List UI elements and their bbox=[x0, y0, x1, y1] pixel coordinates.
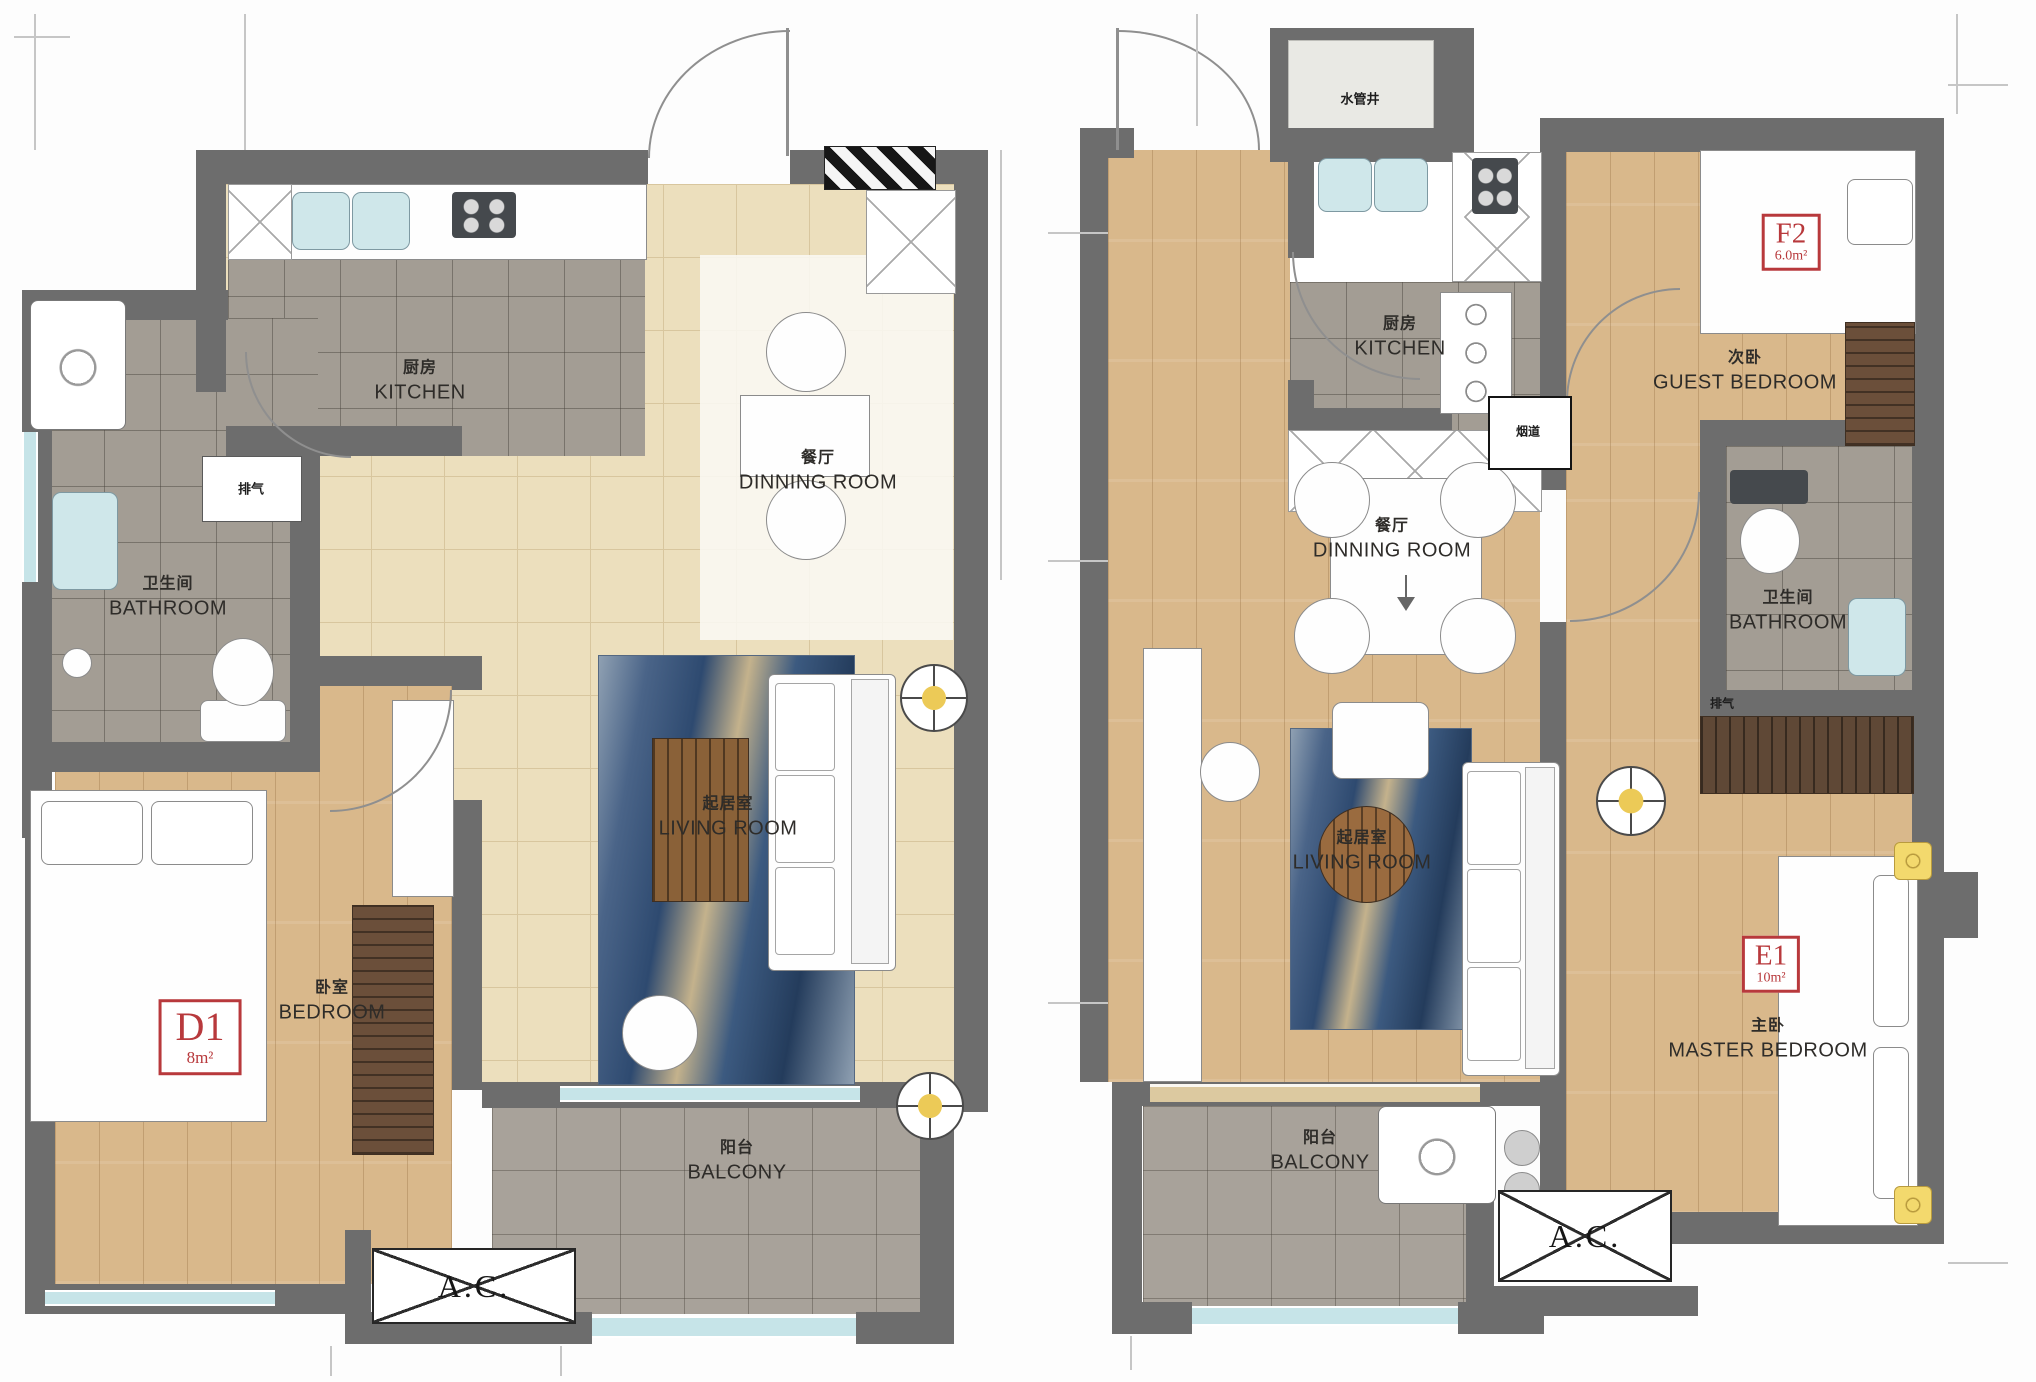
right-kitchen-sink-right bbox=[1374, 158, 1428, 212]
right-entry-door-leaf bbox=[1116, 28, 1119, 150]
balcony-label-cn: 阳台 bbox=[687, 1139, 786, 1160]
wall-segment bbox=[1270, 128, 1474, 162]
lounge-chair bbox=[1332, 702, 1429, 779]
balcony-label: 阳台 BALCONY bbox=[687, 1139, 786, 1186]
bedroom-label-cn: 卧室 bbox=[279, 979, 386, 1000]
right-bathroom-label-en: BATHROOM bbox=[1729, 609, 1847, 635]
right-sofa bbox=[1462, 762, 1560, 1076]
right-balcony-label-cn: 阳台 bbox=[1270, 1129, 1369, 1150]
right-dining-label-en: DINNING ROOM bbox=[1313, 537, 1471, 563]
dimension-tick bbox=[1000, 150, 1002, 580]
toilet-tank bbox=[200, 700, 286, 742]
wall-segment bbox=[452, 800, 482, 1090]
dimension-tick bbox=[560, 1346, 562, 1376]
wall-segment bbox=[1540, 118, 1942, 152]
dimension-tick bbox=[330, 1346, 332, 1376]
wall-segment bbox=[954, 150, 988, 1112]
ceiling-light-symbol bbox=[900, 664, 968, 732]
right-living-label-en: LIVING ROOM bbox=[1293, 849, 1432, 875]
ac-unit-box: A.C. bbox=[372, 1248, 576, 1324]
sofa-cushion bbox=[1467, 967, 1521, 1061]
small-chair bbox=[1200, 742, 1260, 802]
dimension-tick bbox=[1130, 1336, 1132, 1370]
floor-drain bbox=[62, 648, 92, 678]
kitchen-label: 厨房 KITCHEN bbox=[374, 359, 465, 406]
stove bbox=[452, 192, 516, 238]
unit-tag-d1: D1 8m² bbox=[159, 999, 242, 1075]
dining-stool bbox=[766, 312, 846, 392]
wall-light-symbol bbox=[1894, 842, 1932, 880]
wall-segment bbox=[196, 150, 226, 392]
dimension-tick bbox=[1948, 84, 2008, 86]
guest-bedroom-label-en: GUEST BEDROOM bbox=[1653, 369, 1837, 395]
wall-segment bbox=[1112, 1082, 1142, 1334]
wall-segment bbox=[1288, 380, 1314, 434]
balcony-window bbox=[564, 1316, 856, 1338]
kitchen-sink-left bbox=[292, 192, 350, 250]
armchair bbox=[622, 995, 698, 1071]
ceiling-light-symbol bbox=[896, 1072, 964, 1140]
pillow bbox=[41, 801, 143, 865]
dining-label: 餐厅 DINNING ROOM bbox=[739, 449, 897, 496]
wall-segment bbox=[1080, 128, 1108, 1082]
table-arrow-icon bbox=[1397, 597, 1415, 611]
sofa-backrest bbox=[851, 679, 889, 964]
tv-cabinet bbox=[1143, 648, 1202, 1082]
small-appliance bbox=[1472, 158, 1518, 214]
sofa-cushion bbox=[775, 683, 835, 771]
dining-label-cn: 餐厅 bbox=[739, 449, 897, 470]
exhaust-label: 排气 bbox=[238, 479, 264, 498]
dimension-tick bbox=[1048, 560, 1108, 562]
balcony-door-window bbox=[560, 1086, 860, 1102]
wall-segment bbox=[1466, 1286, 1698, 1316]
shear-wall-hatch bbox=[824, 146, 936, 190]
dining-chair bbox=[1440, 598, 1516, 674]
right-entry-door-arc bbox=[1118, 30, 1260, 150]
unit-tag-f2-area: 6.0m² bbox=[1775, 249, 1808, 265]
guest-bedroom-label: 次卧 GUEST BEDROOM bbox=[1653, 349, 1837, 396]
balcony-washer bbox=[1378, 1106, 1496, 1204]
floor-plan-canvas: 厨房 KITCHEN 餐厅 DINNING ROOM 排气 卫生间 BATHRO… bbox=[0, 0, 2036, 1382]
table-arrow-stem bbox=[1405, 575, 1407, 599]
shoe-cabinet bbox=[866, 190, 956, 294]
dining-label-en: DINNING ROOM bbox=[739, 469, 897, 495]
balcony-sill-band bbox=[1150, 1084, 1480, 1102]
kitchen-cabinet bbox=[228, 184, 292, 260]
washer-knob bbox=[1504, 1130, 1540, 1166]
right-kitchen-label-cn: 厨房 bbox=[1354, 315, 1445, 336]
dimension-tick bbox=[244, 14, 246, 150]
balcony-label-en: BALCONY bbox=[687, 1159, 786, 1185]
wall-segment bbox=[196, 150, 648, 184]
right-kitchen-label: 厨房 KITCHEN bbox=[1354, 315, 1445, 362]
right-dining-label: 餐厅 DINNING ROOM bbox=[1313, 517, 1471, 564]
wall-segment bbox=[1270, 28, 1474, 40]
wall-segment bbox=[856, 1312, 954, 1344]
right-balcony-label: 阳台 BALCONY bbox=[1270, 1129, 1369, 1176]
guest-bedroom-label-cn: 次卧 bbox=[1653, 349, 1837, 370]
kitchen-label-en: KITCHEN bbox=[374, 379, 465, 405]
pillow bbox=[1873, 1047, 1909, 1199]
wall-segment bbox=[1700, 690, 1940, 716]
right-ac-unit-box: A.C. bbox=[1498, 1190, 1672, 1282]
wall-segment bbox=[1312, 408, 1452, 430]
right-toilet-tank bbox=[1730, 470, 1808, 504]
living-room-label-cn: 起居室 bbox=[659, 795, 798, 816]
bookshelf bbox=[1700, 716, 1914, 794]
right-living-label-cn: 起居室 bbox=[1293, 829, 1432, 850]
bedroom-label: 卧室 BEDROOM bbox=[279, 979, 386, 1026]
washing-machine bbox=[30, 300, 126, 430]
dining-chair bbox=[1294, 598, 1370, 674]
wall-segment bbox=[290, 656, 460, 686]
guest-wardrobe bbox=[1845, 322, 1915, 446]
ac-unit-label: A.C. bbox=[438, 1268, 510, 1305]
dimension-tick bbox=[1956, 14, 1958, 114]
wall-segment bbox=[452, 656, 482, 690]
bathroom-label: 卫生间 BATHROOM bbox=[109, 575, 227, 622]
right-balcony-label-en: BALCONY bbox=[1270, 1149, 1369, 1175]
living-room-label: 起居室 LIVING ROOM bbox=[659, 795, 798, 842]
dimension-tick bbox=[1948, 1262, 2008, 1264]
wall-segment bbox=[1700, 420, 1726, 716]
kitchen-sink-right bbox=[352, 192, 410, 250]
unit-tag-e1-area: 10m² bbox=[1755, 971, 1787, 987]
right-bathroom-label-cn: 卫生间 bbox=[1729, 589, 1847, 610]
right-living-label: 起居室 LIVING ROOM bbox=[1293, 829, 1432, 876]
right-dining-label-cn: 餐厅 bbox=[1313, 517, 1471, 538]
pillow bbox=[151, 801, 253, 865]
right-kitchen-sink-left bbox=[1318, 158, 1372, 212]
dimension-tick bbox=[1048, 1002, 1108, 1004]
unit-tag-e1-code: E1 bbox=[1755, 941, 1787, 971]
master-bedroom-label: 主卧 MASTER BEDROOM bbox=[1668, 1017, 1867, 1064]
round-pillow bbox=[1847, 179, 1913, 245]
right-bathroom-label: 卫生间 BATHROOM bbox=[1729, 589, 1847, 636]
toilet-bowl bbox=[212, 638, 274, 706]
wall-segment bbox=[1288, 162, 1314, 258]
kitchen-label-cn: 厨房 bbox=[374, 359, 465, 380]
unit-tag-f2: F2 6.0m² bbox=[1762, 214, 1821, 271]
sofa-cushion bbox=[1467, 869, 1521, 963]
right-balcony-window bbox=[1192, 1306, 1458, 1326]
bathroom-label-en: BATHROOM bbox=[109, 595, 227, 621]
ceiling-light-symbol bbox=[1596, 766, 1666, 836]
right-exhaust-label: 排气 bbox=[1710, 695, 1734, 712]
flue-label: 烟道 bbox=[1516, 423, 1540, 440]
right-ac-unit-label: A.C. bbox=[1549, 1218, 1621, 1255]
right-bathroom-sink bbox=[1848, 598, 1906, 676]
dimension-tick bbox=[14, 36, 70, 38]
bedroom-label-en: BEDROOM bbox=[279, 999, 386, 1025]
unit-tag-d1-code: D1 bbox=[176, 1006, 225, 1048]
wall-segment bbox=[22, 742, 304, 772]
bathroom-label-cn: 卫生间 bbox=[109, 575, 227, 596]
wall-segment bbox=[1112, 1302, 1192, 1334]
entry-door-leaf bbox=[786, 28, 789, 156]
sofa-cushion bbox=[1467, 771, 1521, 865]
unit-tag-e1: E1 10m² bbox=[1742, 936, 1800, 993]
dimension-tick bbox=[1048, 232, 1108, 234]
wall-segment bbox=[1944, 872, 1978, 938]
bathroom-window bbox=[22, 432, 38, 582]
living-room-label-en: LIVING ROOM bbox=[659, 815, 798, 841]
dimension-tick bbox=[34, 14, 36, 150]
wardrobe bbox=[352, 905, 434, 1155]
bedroom-window bbox=[45, 1290, 275, 1306]
right-toilet-bowl bbox=[1740, 508, 1800, 574]
wall-light-symbol bbox=[1894, 1186, 1932, 1224]
sofa-cushion bbox=[775, 867, 835, 955]
master-bedroom-label-cn: 主卧 bbox=[1668, 1017, 1867, 1038]
entry-door-arc bbox=[648, 30, 790, 158]
right-kitchen-label-en: KITCHEN bbox=[1354, 335, 1445, 361]
dimension-tick bbox=[1196, 14, 1198, 126]
pillow bbox=[1873, 875, 1909, 1027]
unit-tag-f2-code: F2 bbox=[1775, 219, 1808, 249]
sofa-backrest bbox=[1525, 767, 1555, 1069]
water-shaft-label: 水管井 bbox=[1340, 89, 1379, 108]
master-bedroom-label-en: MASTER BEDROOM bbox=[1668, 1037, 1867, 1063]
unit-tag-d1-area: 8m² bbox=[176, 1048, 225, 1068]
